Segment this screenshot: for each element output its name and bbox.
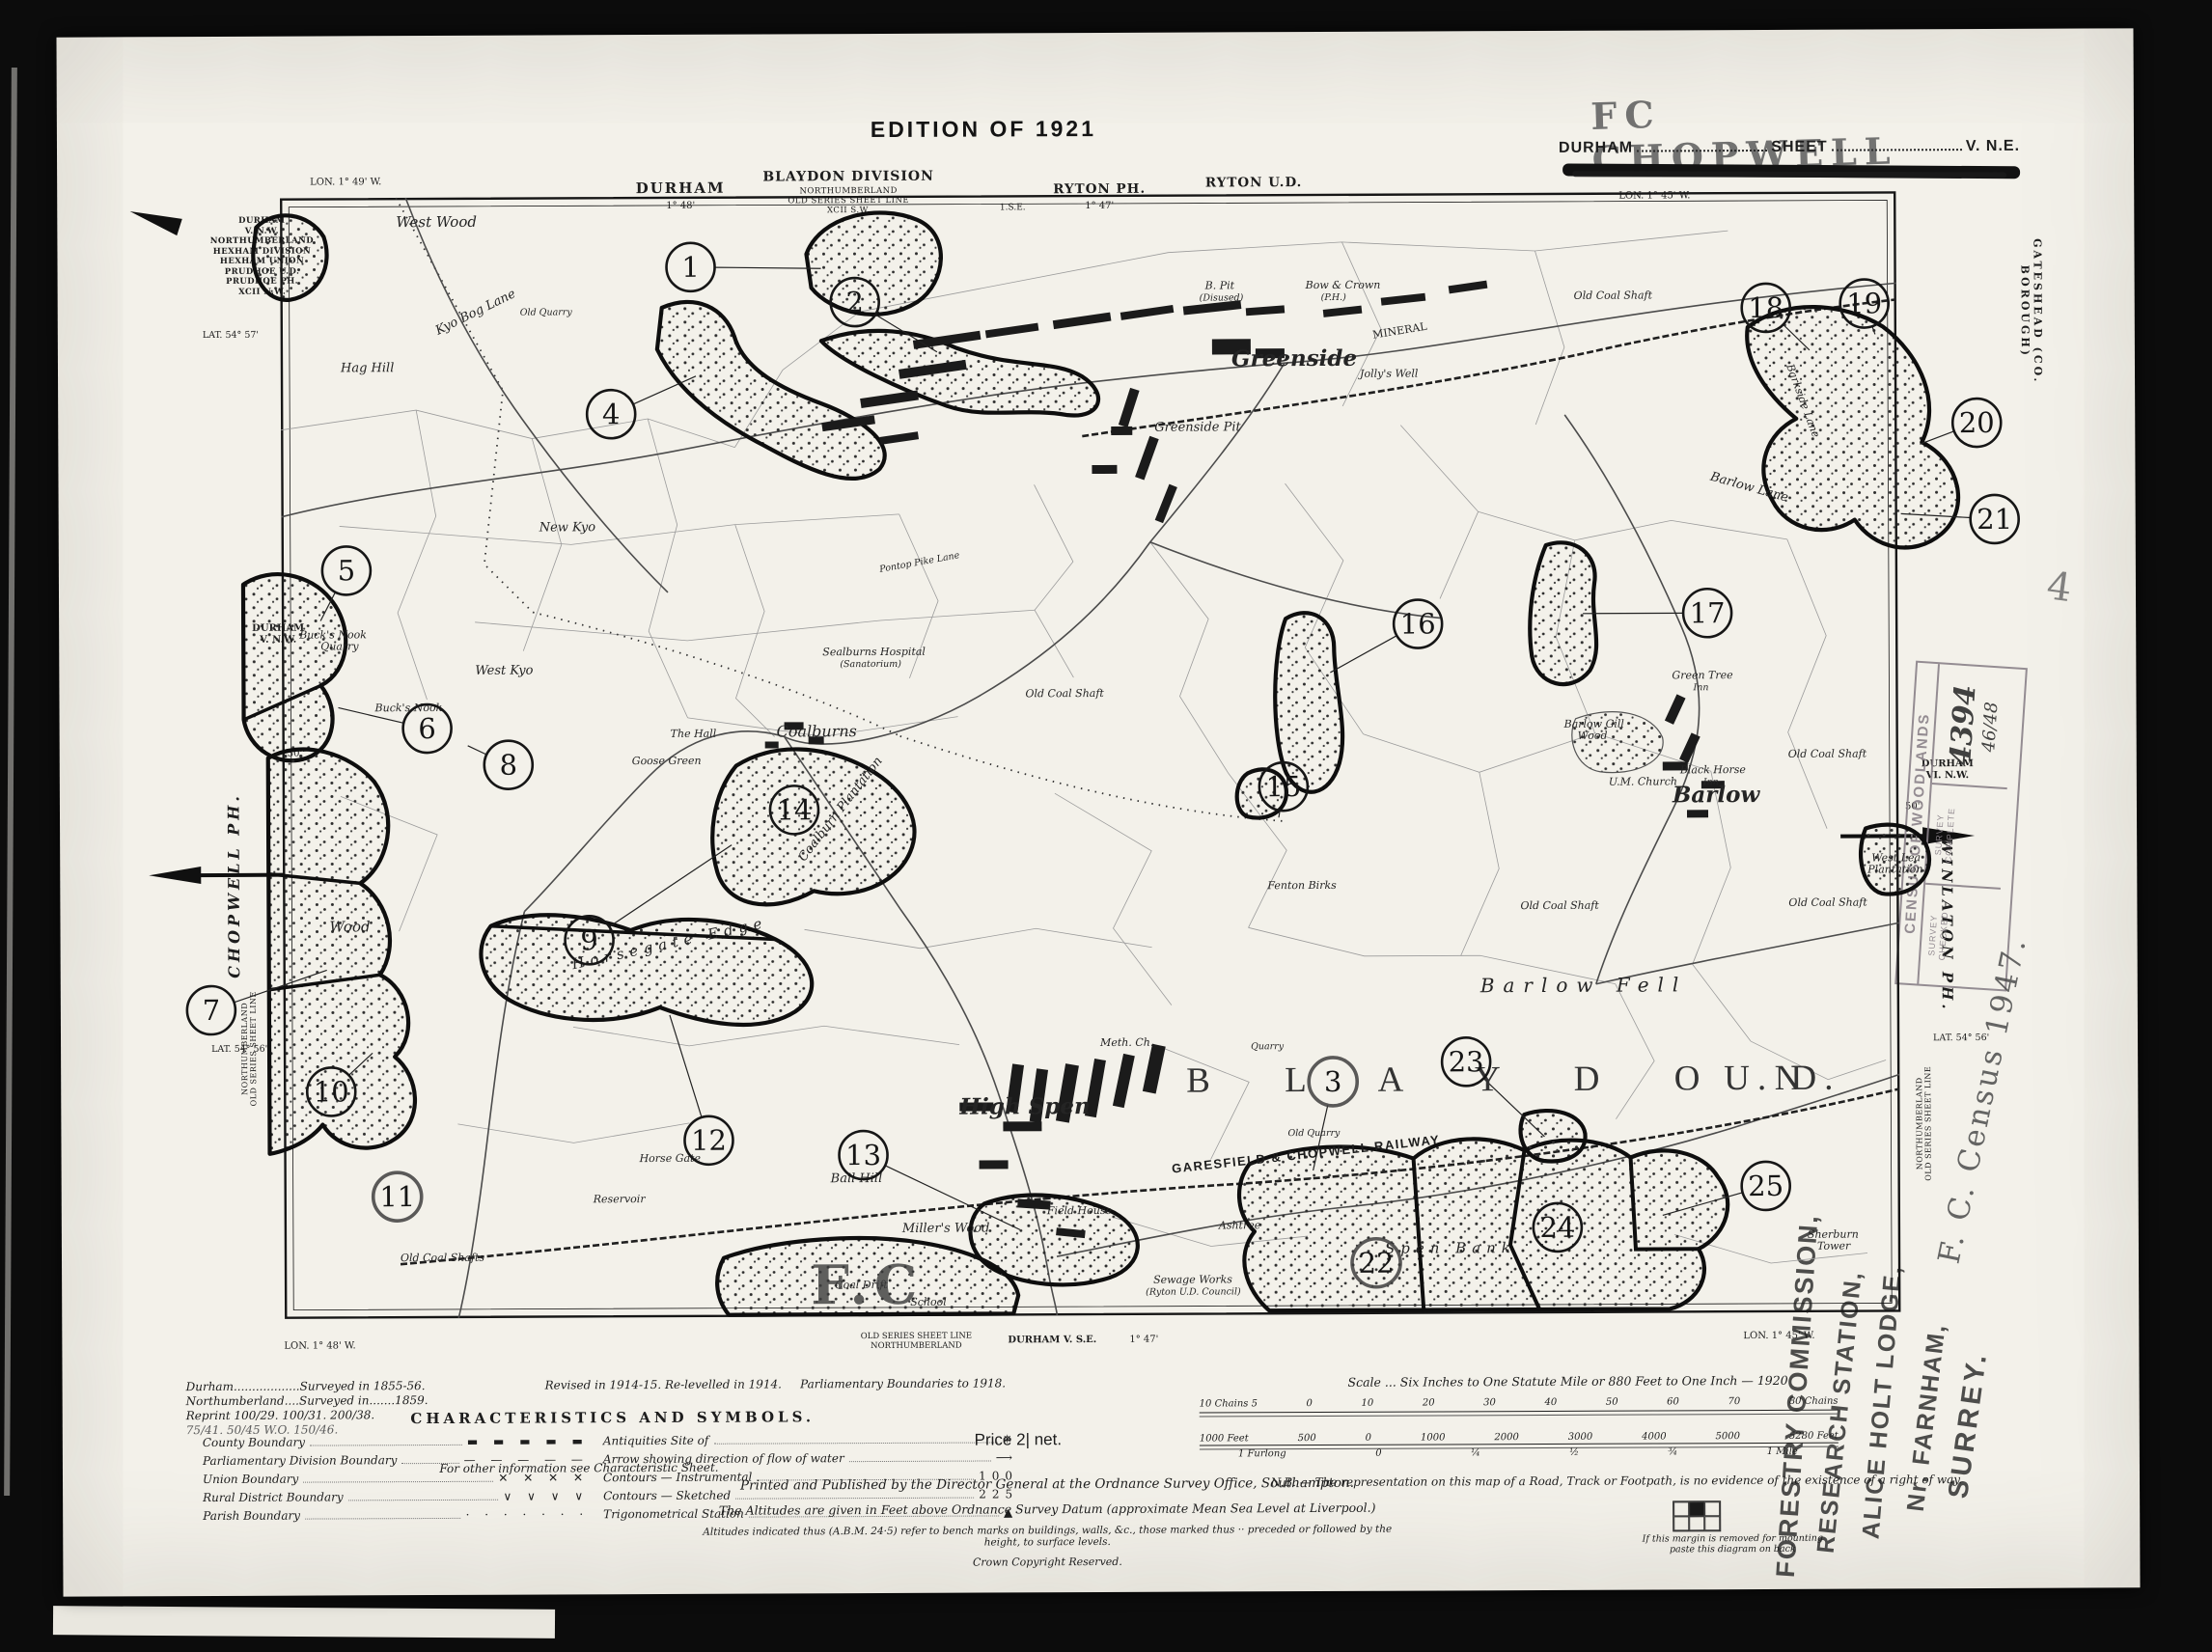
parcel-number: 6 (418, 712, 436, 745)
building-block (1053, 313, 1112, 330)
map-label: Wood (1578, 730, 1608, 742)
map-label: Old Coal Shaft (1025, 687, 1104, 700)
scalebar-tick-label: 40 (1544, 1397, 1557, 1408)
building-block (1119, 388, 1140, 427)
map-label: Old Coal Shaft (1520, 899, 1599, 912)
revised-note: Revised in 1914-15. Re-levelled in 1914. (545, 1377, 782, 1391)
building-block (1120, 305, 1175, 320)
map-label: Black Horse (1679, 763, 1747, 776)
scalebar-tick-label: 1000 (1421, 1432, 1446, 1443)
map-label: Tower (1817, 1240, 1851, 1253)
scan-paper-strip (53, 1606, 555, 1638)
parcel-number: 4 (602, 398, 621, 430)
top-ryton-ud: RYTON U.D. (1176, 175, 1331, 191)
building-block (1155, 484, 1177, 523)
map-label: Old Quarry (1287, 1128, 1341, 1139)
census-stamp-cell-complete: SURVEY COMPLETE (1925, 783, 2007, 888)
map-label: Inn (1692, 682, 1708, 693)
scalebar-tick-label: 1 Mile (1767, 1446, 1798, 1457)
map-label: Barlow Fell (1479, 973, 1688, 997)
parcel-number: 22 (1359, 1247, 1395, 1280)
revision-block: Revised in 1914-15. Re-levelled in 1914.… (545, 1375, 1221, 1392)
pencil-number: 4 (2044, 564, 2074, 611)
map-label: Quarry (1251, 1041, 1285, 1052)
scalebar-tick-label: ¾ (1668, 1446, 1677, 1457)
parcel-number: 2 (845, 286, 864, 318)
scalebar-tick-label: 4000 (1642, 1431, 1667, 1442)
map-label: Fenton Birks (1266, 879, 1337, 892)
parcel-number: 12 (691, 1124, 727, 1157)
map-label: Quarry (320, 640, 359, 652)
leader-line (468, 746, 486, 755)
map-label: Old Coal Shaft (1574, 289, 1653, 301)
map-label: Bow & Crown (1305, 279, 1381, 291)
map-label: Old Coal Shaft (1788, 896, 1867, 909)
map-body: West WoodKyo Bog LaneHag HillOld QuarryN… (280, 191, 1900, 1318)
building-block (1135, 436, 1159, 481)
census-stamp-cell-checked: SURVEY CHECKED (1919, 883, 2001, 988)
map-label: (P.H.) (1321, 292, 1347, 303)
parcel-number: 3 (1324, 1065, 1342, 1098)
sheet-number: V. N.E. (1966, 138, 2020, 155)
mounting-diagram (1673, 1501, 1721, 1531)
adjoining-county-gateshead: GATESHEAD (CO. BOROUGH) (2018, 201, 2044, 423)
sheet-county: DURHAM (1559, 140, 1633, 157)
building-block (879, 431, 919, 445)
old-series-label-right: NORTHUMBERLAND OLD SERIES SHEET LINE (1915, 1012, 1933, 1234)
map-label: Field House (1046, 1204, 1113, 1217)
building-block (765, 741, 779, 748)
map-label: (Sanatorium) (840, 659, 901, 670)
building-block (1113, 1054, 1135, 1108)
map-label: Ashtree (1218, 1219, 1261, 1231)
parcel-number: 25 (1748, 1170, 1783, 1202)
parcel-number: 11 (379, 1180, 415, 1213)
map-label: Green Tree (1672, 669, 1733, 681)
map-label: Greenside Pit (1154, 420, 1241, 434)
scalebar-tick-label: 20 (1423, 1397, 1435, 1408)
scalebar-rule (1200, 1410, 1839, 1418)
map-label: (Ryton U.D. Council) (1146, 1286, 1241, 1297)
scale-title: Scale ... Six Inches to One Statute Mile… (1298, 1373, 1839, 1390)
imprint-benchmarks: Altitudes indicated thus (A.B.M. 24·5) r… (700, 1524, 1395, 1550)
adjoining-sheet-arrow (127, 203, 182, 235)
scalebar-tick-label: 10 (1361, 1398, 1373, 1409)
map-label: Wood (329, 918, 370, 935)
map-sheet-paper: EDITION OF 1921 DURHAM 1° 48' BLAYDON DI… (56, 28, 2140, 1596)
parcel-number: 10 (314, 1075, 349, 1108)
scanned-map-photo: EDITION OF 1921 DURHAM 1° 48' BLAYDON DI… (0, 0, 2212, 1652)
scalebar-tick-label: 2000 (1494, 1432, 1519, 1443)
scalebar-tick-label: ½ (1569, 1447, 1579, 1458)
lon-147-bottom: 1° 47' (1129, 1335, 1187, 1345)
building-block (1143, 1044, 1166, 1094)
map-label: Goose Green (632, 755, 702, 767)
imprint-copyright: Crown Copyright Reserved. (700, 1555, 1395, 1570)
map-label: (Disused) (1200, 292, 1244, 303)
scalebar-tick-label: 0 (1307, 1398, 1313, 1409)
building-block (980, 1160, 1009, 1169)
scalebar-tick-label: 1 Furlong (1238, 1448, 1286, 1459)
mounting-note: If this margin is removed for mounting p… (1607, 1533, 1858, 1556)
lon-148-bottom: LON. 1° 48' W. (284, 1340, 400, 1352)
lon-145-bottom: LON. 1° 45' W. (1743, 1331, 1859, 1342)
edition-title: EDITION OF 1921 (848, 116, 1119, 143)
sheet-word: SHEET (1771, 139, 1827, 156)
census-number-2: 46/48 (1978, 702, 2002, 753)
nb-rightofway-note: N.B. — The representation on this map of… (1269, 1473, 1964, 1489)
scalebar-tick-label: 5000 (1716, 1431, 1741, 1442)
map-label: Plantation (1866, 863, 1922, 875)
map-label: High Spen (958, 1093, 1090, 1120)
scalebar-tick-label: 5280 Feet (1789, 1431, 1839, 1442)
leader-line (670, 1015, 702, 1117)
map-label: Jolly's Well (1358, 368, 1419, 380)
sheet-number-line: DURHAM SHEET V. N.E. (1559, 137, 2020, 157)
map-label: New Kyo (539, 520, 596, 535)
legend-row: Parish Boundary· · · · · · · (203, 1507, 589, 1528)
leader-line (715, 267, 821, 269)
scan-edge-sliver (4, 68, 17, 1496)
map-label: Kyo Bog Lane (432, 287, 518, 339)
scalebar-tick-label: 70 (1728, 1396, 1740, 1407)
building-block (1679, 732, 1700, 762)
parcel-number: 24 (1539, 1211, 1575, 1244)
map-label: U. D. (1724, 1059, 1840, 1099)
sheet-arrow-west (149, 867, 201, 884)
building-block (1323, 306, 1363, 317)
map-label: Hag Hill (340, 361, 394, 375)
parcel-number: 19 (1846, 287, 1882, 319)
parcel-number-circles: 1245678910111213141516171819202122233242… (183, 237, 2022, 1292)
scalebar-furlong: 1 Furlong0¼½¾1 Mile (1238, 1446, 1798, 1460)
map-label: Greenside (1231, 345, 1357, 372)
building-block (1687, 810, 1708, 817)
parcel-number: 8 (499, 749, 517, 782)
map-label: The Hall (671, 728, 717, 740)
parcel-number: 7 (203, 994, 221, 1027)
parcel-number: 17 (1690, 596, 1726, 629)
map-label: Sealburns Hospital (822, 646, 926, 658)
pencil-fc-annotation: F.C (811, 1253, 923, 1318)
legend-left-column: County Boundary▬ ▬ ▬ ▬ ▬Parliamentary Di… (203, 1434, 589, 1528)
map-label: Sewage Works (1153, 1273, 1232, 1285)
scalebar-chains: 10 Chains 501020304050607080 Chains (1200, 1396, 1839, 1410)
dotted-rule (1637, 138, 1767, 152)
map-label: Old Quarry (520, 307, 573, 317)
scalebar-tick-label: 30 (1483, 1397, 1496, 1408)
map-label: West Wood (396, 213, 477, 231)
scalebar-tick-label: 60 (1667, 1396, 1679, 1407)
parcel-number: 9 (580, 923, 598, 956)
map-label: U.M. Church (1609, 775, 1677, 787)
scalebar-tick-label: 500 (1298, 1433, 1316, 1444)
map-label: Pontop Pike Lane (878, 550, 961, 575)
parcel-number: 14 (776, 793, 812, 826)
scalebar-tick-label: 50 (1606, 1397, 1618, 1408)
building-block (1381, 293, 1426, 306)
lon-149-label: LON. 1° 49' W. (310, 177, 426, 188)
parcel-number: 15 (1265, 770, 1301, 803)
map-label: MINERAL (1371, 320, 1428, 342)
scalebar-tick-label: 1000 Feet (1200, 1433, 1249, 1444)
scalebar-tick-label: 3000 (1568, 1432, 1593, 1443)
top-division-label: BLAYDON DIVISION (723, 169, 974, 185)
building-block (1246, 305, 1285, 316)
parcel-number: 18 (1748, 291, 1783, 324)
building-block (1665, 694, 1686, 724)
scalebar-tick-label: 10 Chains 5 (1200, 1398, 1258, 1409)
building-block (985, 323, 1039, 339)
building-block (1449, 281, 1488, 294)
scalebar-tick-label: 0 (1375, 1448, 1381, 1459)
durham-vse-label: DURHAM V. S.E. (1008, 1335, 1133, 1346)
price-label: Price 2| net. (912, 1430, 1124, 1450)
dotted-rule (1832, 137, 1962, 151)
scalebar-tick-label: 0 (1366, 1433, 1371, 1444)
building-block (860, 390, 919, 408)
parcel-number: 1 (681, 251, 700, 284)
legend-row: Rural District Boundary∨ ∨ ∨ ∨ (203, 1489, 589, 1509)
parl-boundaries-note: Parliamentary Boundaries to 1918. (800, 1376, 1006, 1390)
map-label: B. Pit (1204, 279, 1235, 291)
map-label: West Kyo (475, 664, 533, 678)
parcel-number: 13 (845, 1139, 881, 1171)
map-label: Old Coal Shaft (1788, 748, 1867, 760)
parcel-number: 23 (1449, 1045, 1484, 1078)
leader-line (1330, 636, 1396, 673)
ink-strikethrough (1572, 171, 2006, 178)
map-label: Spen Bank (1385, 1239, 1516, 1257)
characteristics-title: CHARACTERISTICS AND SYMBOLS. (362, 1408, 864, 1427)
leader-line (609, 845, 733, 927)
map-label: Old Coal Shafts (401, 1252, 484, 1264)
scalebar-tick-label: ¼ (1471, 1447, 1480, 1458)
map-label: Meth. Ch. (1099, 1036, 1153, 1049)
legend-row: County Boundary▬ ▬ ▬ ▬ ▬ (203, 1434, 589, 1454)
map-label: Miller's Wood (901, 1221, 990, 1235)
imprint-block: Printed and Published by the Director Ge… (700, 1475, 1395, 1570)
map-label: Reservoir (593, 1193, 647, 1205)
building-block (1092, 465, 1117, 474)
building-block (1003, 1121, 1041, 1131)
scalebar-tick-label: 80 Chains (1789, 1396, 1839, 1407)
map-label: Inn (1702, 777, 1719, 787)
parcel-number: 16 (1400, 607, 1436, 640)
building-block (1111, 427, 1132, 435)
parcel-number: 20 (1959, 406, 1995, 439)
parcel-number: 21 (1977, 503, 2012, 536)
imprint-altitudes: The Altitudes are given in Feet above Or… (700, 1501, 1395, 1518)
legend-footer: For other information see Characteristic… (372, 1460, 787, 1475)
old-series-bottom: OLD SERIES SHEET LINE NORTHUMBERLAND (834, 1332, 998, 1351)
parcel-number: 5 (338, 554, 356, 587)
census-number: 4394 (1944, 684, 1982, 767)
map-label: Coalburns (777, 722, 857, 740)
census-stamp-handwritten: 4394 46/48 (1932, 664, 2015, 787)
